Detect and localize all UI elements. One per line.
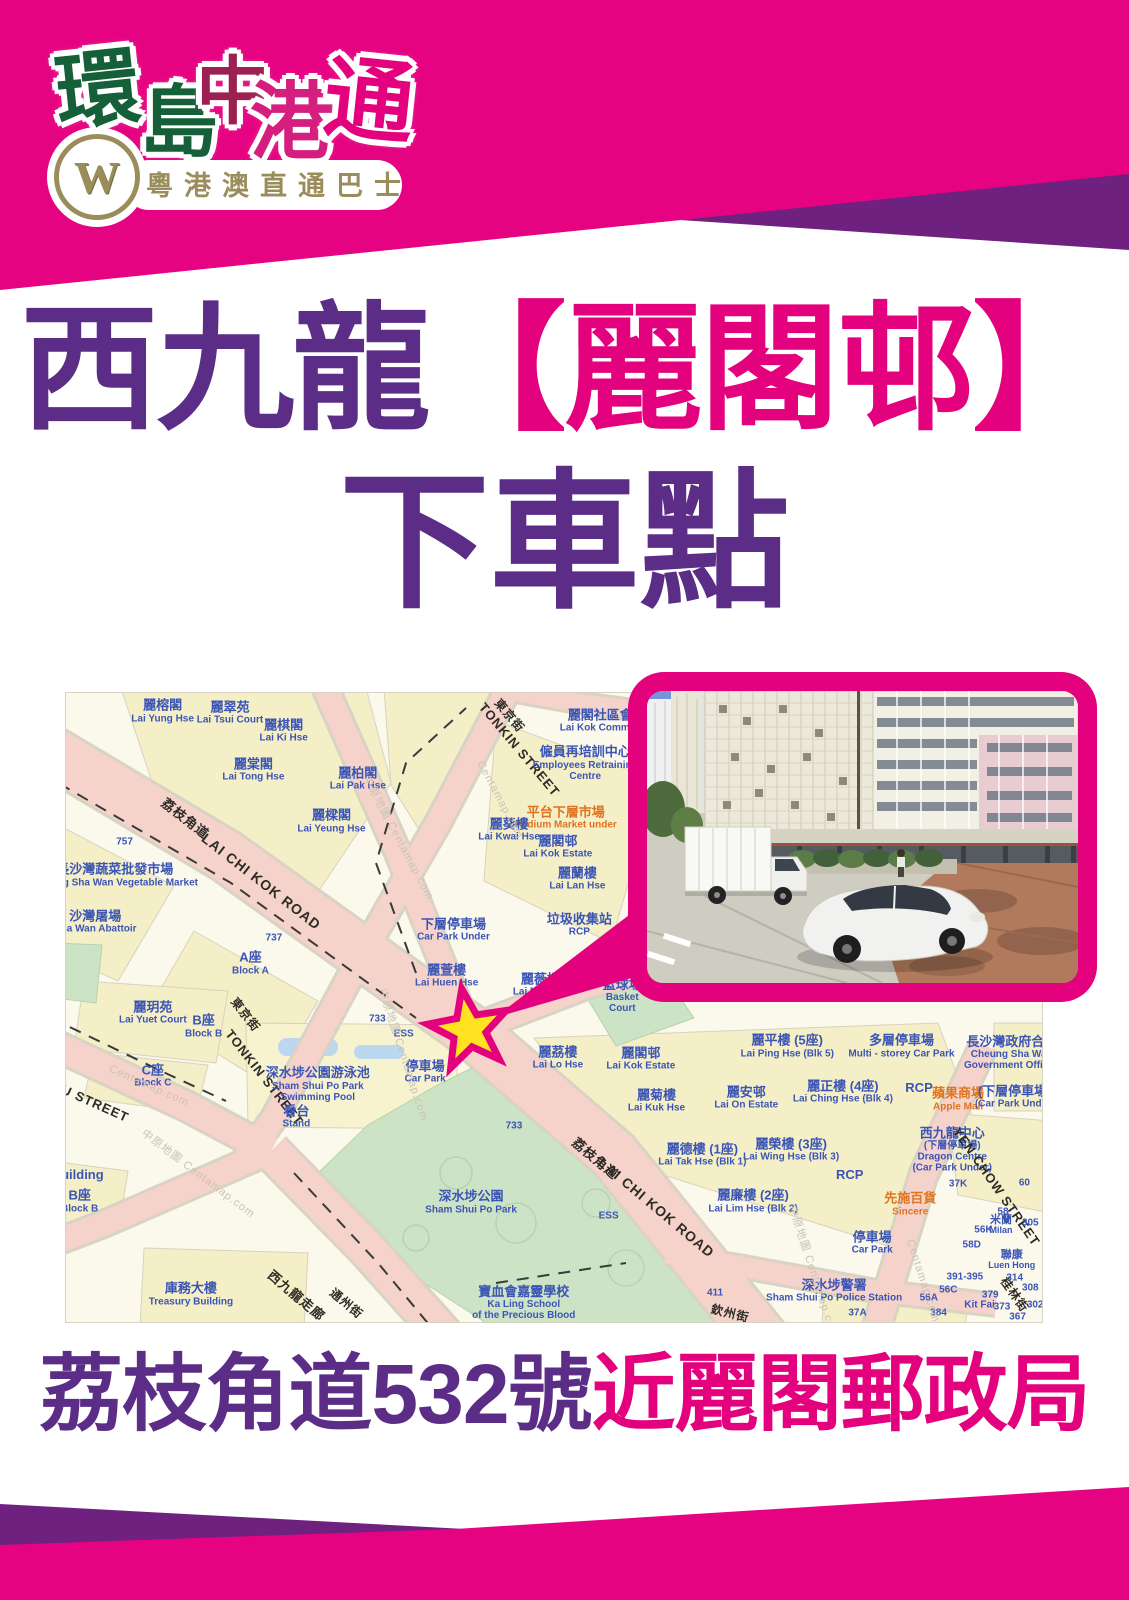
map-label: 長沙灣蔬菜批發市場Cheung Sha Wan Vegetable Market bbox=[66, 863, 198, 888]
map-label: 深水埗公園游泳池Sham Shui Po ParkSwimming Pool bbox=[266, 1066, 370, 1102]
map-label: 麗蘭樓Lai Lan Hse bbox=[549, 866, 605, 891]
map-label: 中原地圖 Centamap.com bbox=[360, 774, 436, 902]
map-label: U STREET bbox=[66, 1083, 131, 1125]
title-area-text: 西九龍 bbox=[20, 293, 428, 447]
title-line1: 西九龍【麗閣邨】 bbox=[0, 296, 1129, 445]
map-label: 37A bbox=[848, 1308, 866, 1319]
map-label: 麗菊樓Lai Kuk Hse bbox=[628, 1088, 685, 1113]
map-label: 733 bbox=[506, 1120, 523, 1131]
map-label: Centamap.com bbox=[904, 1238, 942, 1322]
map-label: 深水埗公園Sham Shui Po Park bbox=[425, 1190, 517, 1215]
map-label: RCP bbox=[905, 1081, 932, 1095]
map-label: 僱員再培訓中心Employees RetrainingCentre bbox=[533, 745, 638, 781]
poster: W 粵港澳直通巴士 環島中港通 西九龍【麗閣邨】 下車點 bbox=[0, 0, 1129, 1600]
map-label: 391-395 bbox=[947, 1271, 984, 1282]
title-line2: 下車點 bbox=[0, 461, 1129, 623]
map-label: B座Block B bbox=[185, 1014, 222, 1039]
map-label: 先施百貨Sincere bbox=[884, 1192, 936, 1217]
map-label: 麗平樓 (5座)Lai Ping Hse (Blk 5) bbox=[741, 1034, 834, 1059]
map-label: 麗茘樓Lai Lo Hse bbox=[533, 1045, 584, 1070]
map-label: 中原地圖 Centamap.com bbox=[376, 987, 430, 1123]
landmark-text: 近麗閣郵政局 bbox=[592, 1347, 1090, 1441]
map-label: 寶血會嘉靈學校Ka Ling Schoolof the Precious Blo… bbox=[472, 1285, 575, 1321]
map-label: 中原地圖 Centamap.com bbox=[139, 1128, 257, 1221]
map-label: A座Block A bbox=[232, 951, 269, 976]
map-label: 中原地圖 Centamap.com bbox=[785, 1204, 839, 1322]
logo-calligraphy: 環島中港通 bbox=[48, 34, 458, 239]
map-label: 314 bbox=[1006, 1272, 1023, 1283]
map-label: 聯康Luen Hong bbox=[988, 1249, 1035, 1271]
map-label: 西九龍走廊 bbox=[265, 1268, 328, 1322]
map-label: 麗廉樓 (2座)Lai Lim Hse (Blk 2) bbox=[708, 1189, 797, 1214]
map-label: 庫務大樓Treasury Building bbox=[149, 1282, 233, 1307]
title-estate-text: 【麗閣邨】 bbox=[429, 293, 1109, 447]
map-label: 欽州街 bbox=[709, 1303, 750, 1322]
map-label: 757 bbox=[116, 837, 133, 848]
map-label: 多層停車場Multi - storey Car Park bbox=[848, 1034, 954, 1059]
map-label: Building bbox=[66, 1168, 104, 1182]
map-label: RCP bbox=[836, 1168, 863, 1182]
map-label: 麗榮樓 (3座)Lai Wing Hse (Blk 3) bbox=[743, 1137, 839, 1162]
map-label: 麗安邨Lai On Estate bbox=[714, 1085, 778, 1110]
map-label: 麗翠苑Lai Tsui Court bbox=[197, 700, 263, 725]
map-label: 麗閣邨Lai Kok Estate bbox=[606, 1046, 675, 1071]
map-label: 停車場Car Park bbox=[852, 1230, 893, 1255]
map-label: 麗薇樓Lai Mei Hse bbox=[513, 972, 568, 997]
map-label: 305 bbox=[1022, 1218, 1039, 1229]
map-label: 56K bbox=[974, 1225, 992, 1236]
map-label: 看台Stand bbox=[282, 1104, 310, 1129]
map-label: 深水埗警署Sham Shui Po Police Station bbox=[766, 1279, 902, 1304]
map-label: 垃圾收集站RCP bbox=[547, 912, 612, 937]
map-label: 411 bbox=[707, 1288, 723, 1299]
map-label: 58 bbox=[997, 1206, 1008, 1217]
map-label: 367 bbox=[1009, 1311, 1026, 1322]
map-label: LAI CHI KOK ROAD bbox=[199, 830, 324, 932]
map-label: 麗榕閣Lai Yung Hse bbox=[131, 699, 194, 724]
address-text: 荔枝角道532號 bbox=[39, 1347, 591, 1441]
photo-main-building-right bbox=[873, 691, 1078, 831]
map-label: (下層停車場)(Car Park Under) bbox=[975, 1084, 1042, 1109]
map-label: B座Block B bbox=[66, 1189, 98, 1214]
map-label: 長沙灣政府合署Cheung Sha WanGovernment Offices bbox=[964, 1035, 1042, 1071]
map-label: 麗樑閣Lai Yeung Hse bbox=[297, 809, 365, 834]
photo-lamp-pole bbox=[857, 691, 860, 843]
map-label: 麗德樓 (1座)Lai Tak Hse (Blk 1) bbox=[658, 1142, 746, 1167]
logo-calligraphy-char: 環 bbox=[52, 46, 144, 138]
map-label: 308 bbox=[1022, 1283, 1039, 1294]
map-label: 麗閣邨Lai Kok Estate bbox=[523, 834, 592, 859]
logo-calligraphy-char: 通 bbox=[320, 54, 419, 153]
map-label: 通州街 bbox=[327, 1287, 365, 1322]
map-label: 56C bbox=[939, 1284, 957, 1295]
page-title: 西九龍【麗閣邨】 下車點 bbox=[0, 296, 1129, 623]
map-label: 麗萱樓Lai Huen Hse bbox=[415, 963, 478, 988]
photo-pedestrian bbox=[897, 849, 905, 877]
map-label: 302 bbox=[1027, 1300, 1042, 1311]
street-view-photo bbox=[647, 691, 1078, 983]
photo-main-building-left bbox=[705, 691, 873, 843]
map-label: ESS bbox=[599, 1210, 619, 1221]
map-label: LAI CHI KOK ROAD bbox=[595, 1154, 717, 1260]
brand-logo: W 粵港澳直通巴士 環島中港通 bbox=[48, 34, 458, 239]
map-label: Kit Fai bbox=[964, 1300, 995, 1311]
map-label: 沙灣屠場Sha Wan Abattoir bbox=[66, 909, 137, 934]
map-label: 麗玥苑Lai Yuet Court bbox=[119, 1000, 187, 1025]
map-label: 373 bbox=[994, 1301, 1011, 1312]
map-label: 下層停車場Car Park Under bbox=[417, 917, 490, 942]
map-label: 737 bbox=[266, 933, 283, 944]
address-caption: 荔枝角道532號近麗閣郵政局 bbox=[0, 1344, 1129, 1445]
map-label: 麗棋閣Lai Ki Hse bbox=[259, 718, 307, 743]
map-label: 60 bbox=[1019, 1177, 1030, 1188]
map-label: 麗棠閣Lai Tong Hse bbox=[222, 757, 284, 782]
map-label: 麗正樓 (4座)Lai Ching Hse (Blk 4) bbox=[793, 1079, 893, 1104]
map-label: 37K bbox=[949, 1178, 967, 1189]
street-view-frame bbox=[628, 672, 1097, 1002]
map-label: 58D bbox=[963, 1240, 981, 1251]
